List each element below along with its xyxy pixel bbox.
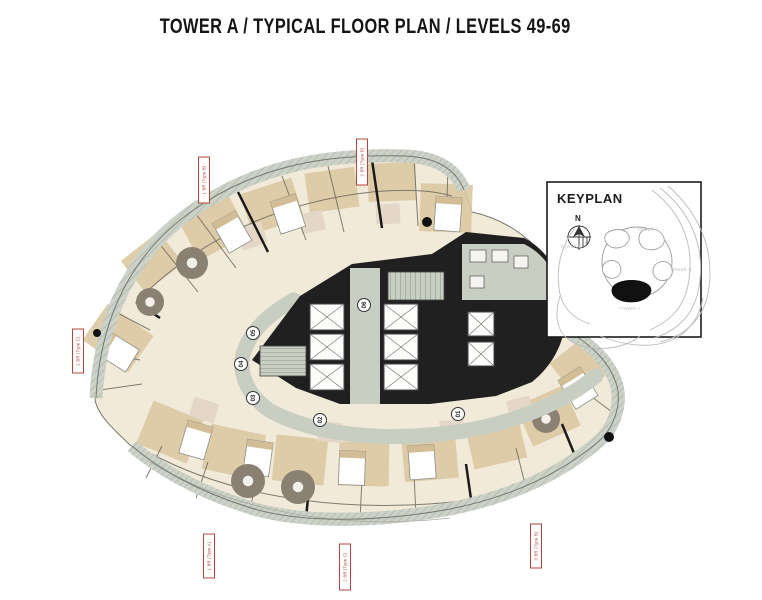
- svg-text:1 BR (Type A): 1 BR (Type A): [207, 541, 212, 570]
- stair-top: [388, 272, 444, 300]
- svg-text:1 BR (Type B): 1 BR (Type B): [202, 165, 207, 194]
- unit-number-badge: 02: [314, 414, 327, 427]
- unit-number-badge: 01: [452, 408, 465, 421]
- keyplan: KEYPLAN N: [547, 182, 710, 348]
- keyplan-tower-label: TOWER A: [619, 306, 640, 311]
- north-label: N: [575, 214, 581, 223]
- unit-type-tag: 2 BR (Type C): [340, 544, 351, 590]
- svg-text:2 BR (Type C): 2 BR (Type C): [343, 552, 348, 582]
- keyplan-tower-label: TOWER B: [560, 244, 582, 249]
- unit-number-badge: 06: [358, 299, 371, 312]
- unit-type-tag: 3 BR (Type B): [531, 524, 542, 568]
- floor-plan: 01 02 03 04 05: [73, 139, 620, 590]
- unit-number-badge: 04: [235, 358, 248, 371]
- unit-number-badge: 03: [247, 392, 260, 405]
- svg-text:05: 05: [251, 329, 257, 336]
- svg-text:04: 04: [239, 360, 245, 367]
- stair-left: [260, 346, 306, 376]
- unit-type-tag: 1 BR (Type A): [204, 534, 215, 578]
- keyplan-title: KEYPLAN: [557, 191, 623, 206]
- svg-text:06: 06: [362, 301, 368, 308]
- svg-text:1 BR (Type C): 1 BR (Type C): [76, 336, 81, 366]
- svg-text:01: 01: [456, 410, 462, 417]
- svg-text:3 BR (Type B): 3 BR (Type B): [534, 531, 539, 560]
- floor-plan-svg: 01 02 03 04 05: [0, 0, 762, 600]
- svg-text:03: 03: [251, 394, 257, 401]
- unit-type-tag: 1 BR (Type C): [73, 329, 84, 373]
- unit-type-tag: 1 BR (Type B): [199, 157, 210, 203]
- svg-text:2 BR (Type B): 2 BR (Type B): [360, 147, 365, 176]
- unit-number-badge: 05: [247, 327, 260, 340]
- svg-text:02: 02: [318, 416, 324, 423]
- floor-plan-sheet: TOWER A / TYPICAL FLOOR PLAN / LEVELS 49…: [0, 0, 762, 600]
- unit-type-tag: 2 BR (Type B): [357, 139, 368, 185]
- core-lobby: [350, 268, 380, 404]
- keyplan-tower-label: TOWER D: [670, 267, 692, 272]
- keyplan-tower-label: TOWER C: [637, 227, 659, 232]
